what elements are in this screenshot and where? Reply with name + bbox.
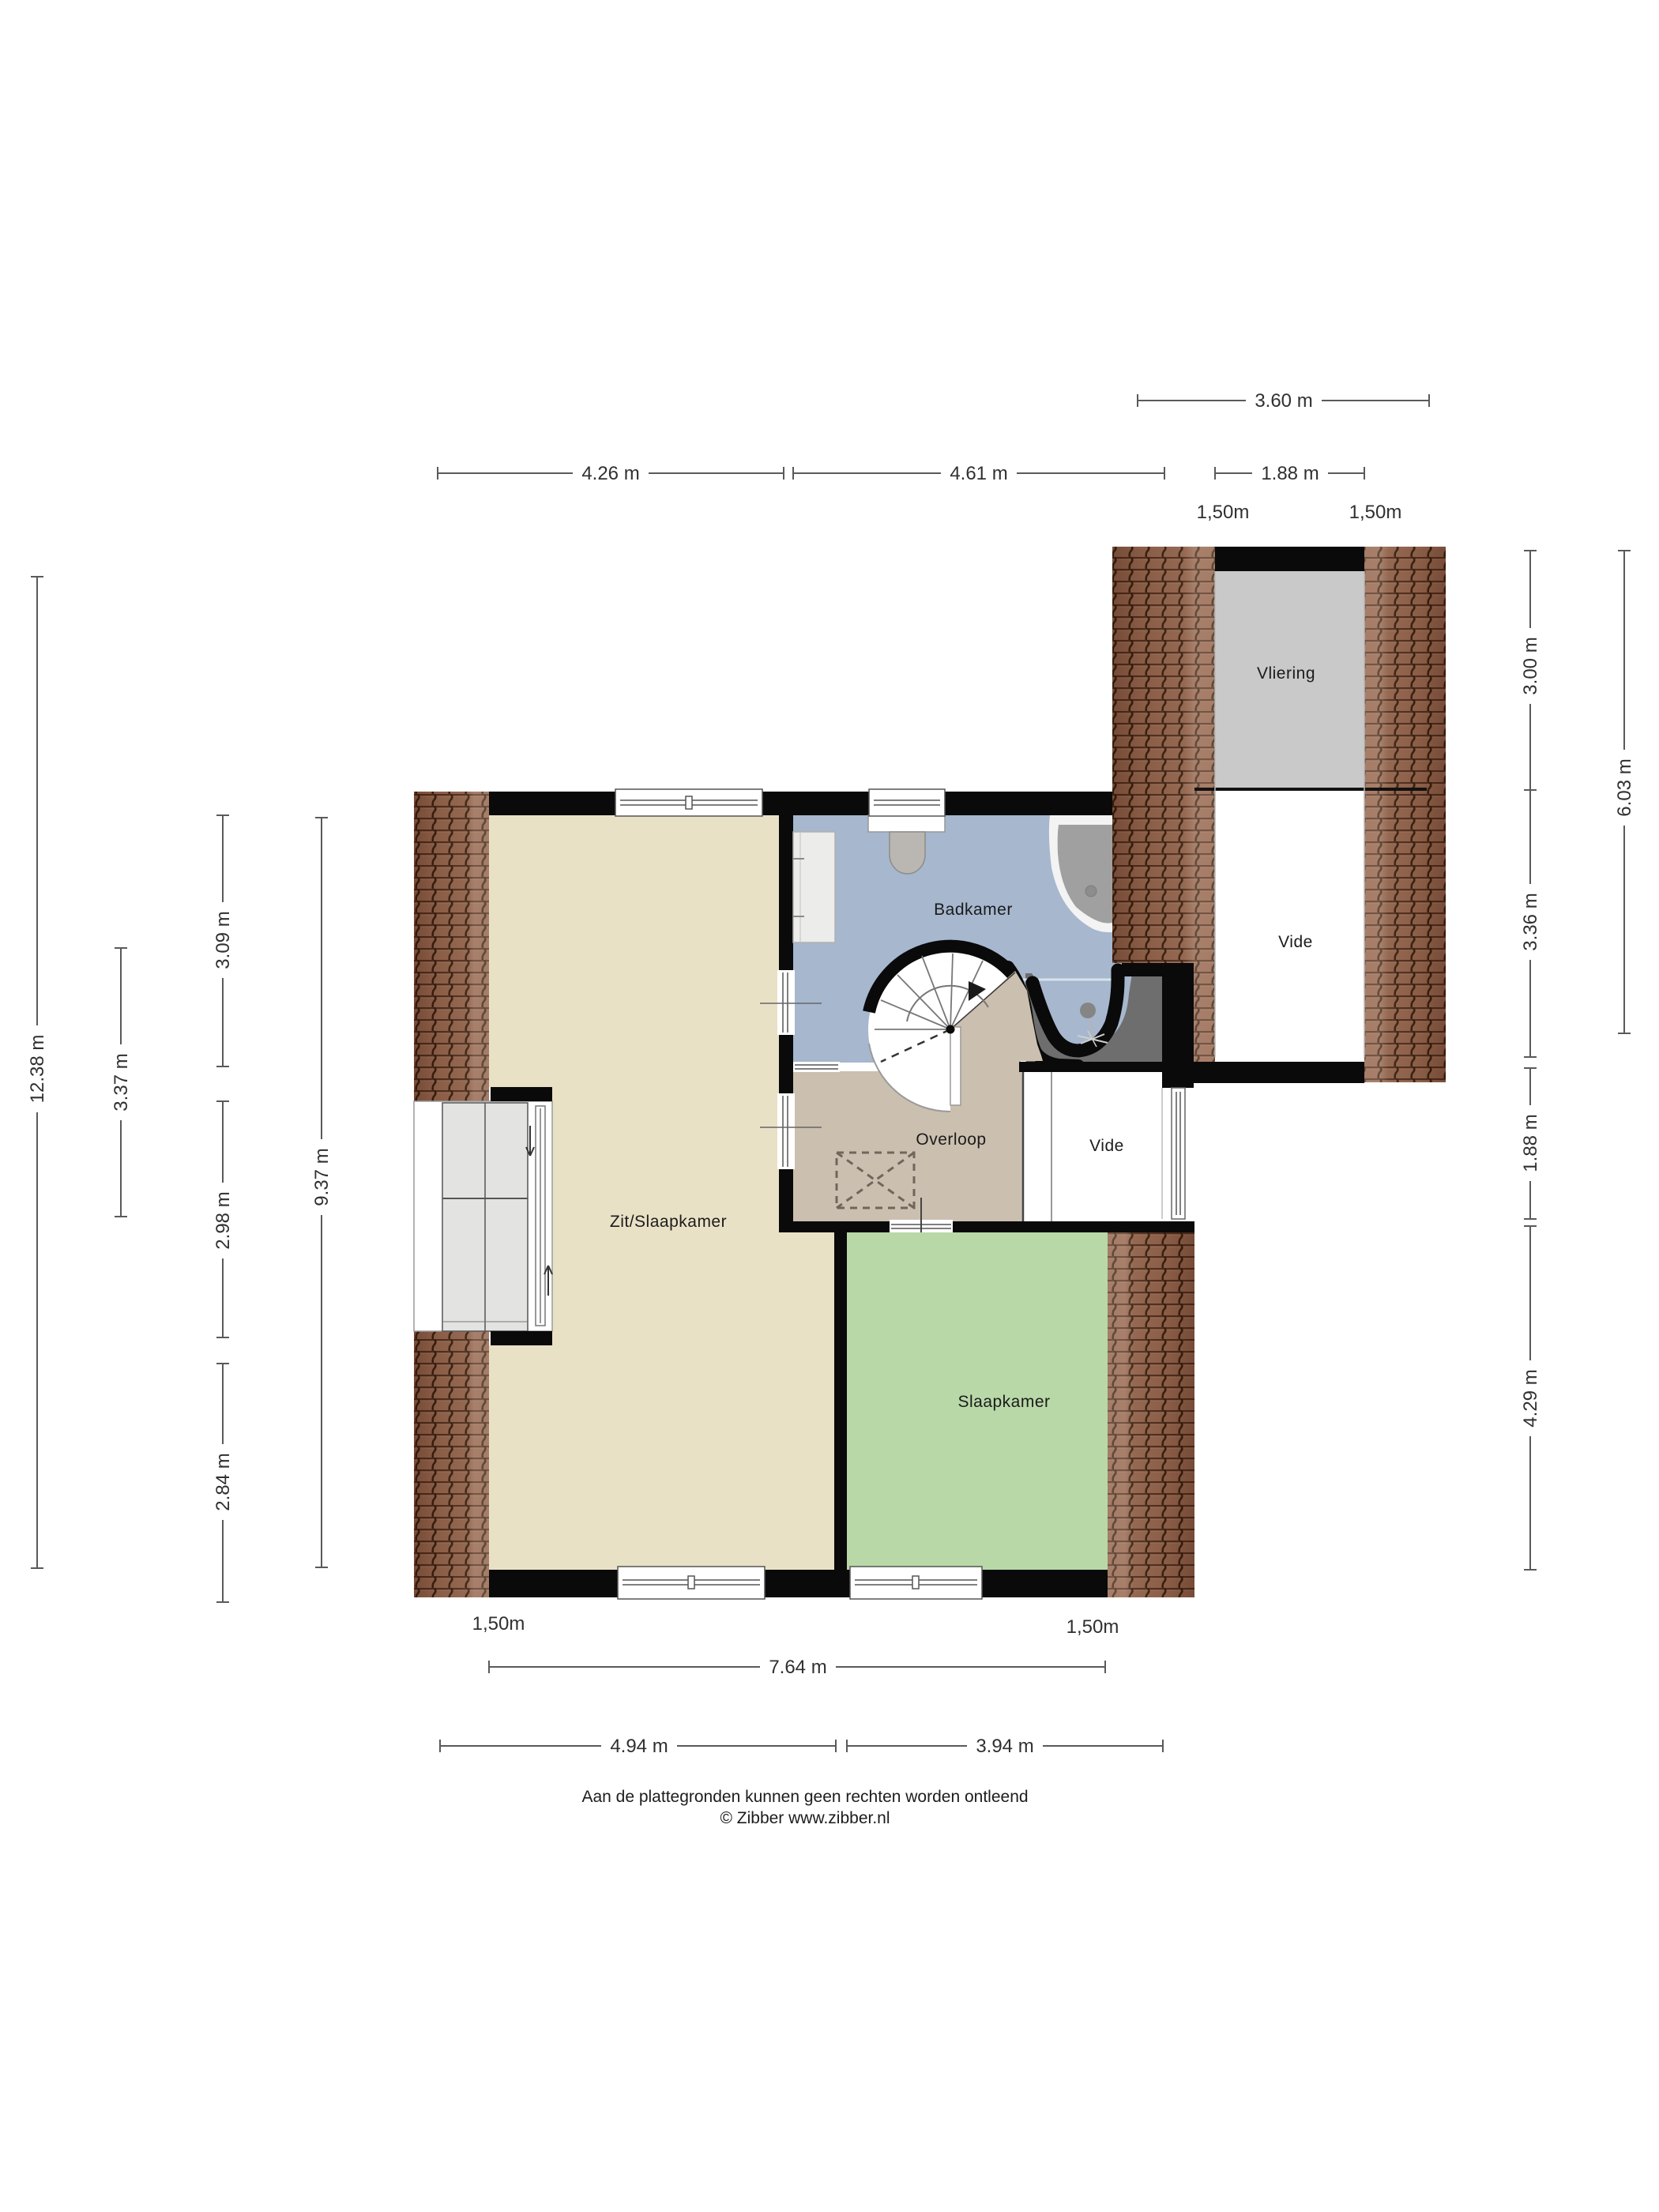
svg-text:7.64 m: 7.64 m xyxy=(769,1657,826,1678)
svg-text:3.60 m: 3.60 m xyxy=(1255,390,1312,412)
svg-text:3.00 m: 3.00 m xyxy=(1520,637,1541,694)
svg-text:1,50m: 1,50m xyxy=(1066,1616,1119,1638)
svg-text:4.61 m: 4.61 m xyxy=(950,463,1007,484)
svg-text:1,50m: 1,50m xyxy=(472,1613,525,1635)
svg-text:3.09 m: 3.09 m xyxy=(213,911,234,969)
svg-text:Vide: Vide xyxy=(1278,933,1313,951)
svg-text:2.98 m: 2.98 m xyxy=(213,1191,234,1249)
svg-text:4.26 m: 4.26 m xyxy=(581,463,639,484)
svg-text:1,50m: 1,50m xyxy=(1197,502,1250,523)
svg-text:1.88 m: 1.88 m xyxy=(1261,463,1319,484)
svg-text:Zit/Slaapkamer: Zit/Slaapkamer xyxy=(610,1213,727,1231)
svg-text:Vliering: Vliering xyxy=(1257,664,1315,683)
svg-text:Aan de plattegronden kunnen ge: Aan de plattegronden kunnen geen rechten… xyxy=(581,1788,1028,1806)
svg-text:Badkamer: Badkamer xyxy=(934,901,1013,919)
svg-text:6.03 m: 6.03 m xyxy=(1614,758,1635,816)
svg-text:1,50m: 1,50m xyxy=(1349,502,1402,523)
svg-text:4.29 m: 4.29 m xyxy=(1520,1369,1541,1427)
svg-text:Overloop: Overloop xyxy=(916,1130,986,1149)
svg-text:3.94 m: 3.94 m xyxy=(976,1736,1033,1757)
svg-text:9.37 m: 9.37 m xyxy=(311,1148,333,1206)
svg-text:1.88 m: 1.88 m xyxy=(1520,1114,1541,1172)
svg-text:3.36 m: 3.36 m xyxy=(1520,893,1541,950)
svg-text:12.38 m: 12.38 m xyxy=(27,1035,48,1104)
svg-text:4.94 m: 4.94 m xyxy=(610,1736,668,1757)
svg-text:Vide: Vide xyxy=(1089,1137,1124,1155)
svg-text:Slaapkamer: Slaapkamer xyxy=(957,1393,1050,1411)
svg-text:© Zibber www.zibber.nl: © Zibber www.zibber.nl xyxy=(720,1809,890,1827)
svg-text:2.84 m: 2.84 m xyxy=(213,1453,234,1510)
svg-text:3.37 m: 3.37 m xyxy=(111,1053,132,1111)
